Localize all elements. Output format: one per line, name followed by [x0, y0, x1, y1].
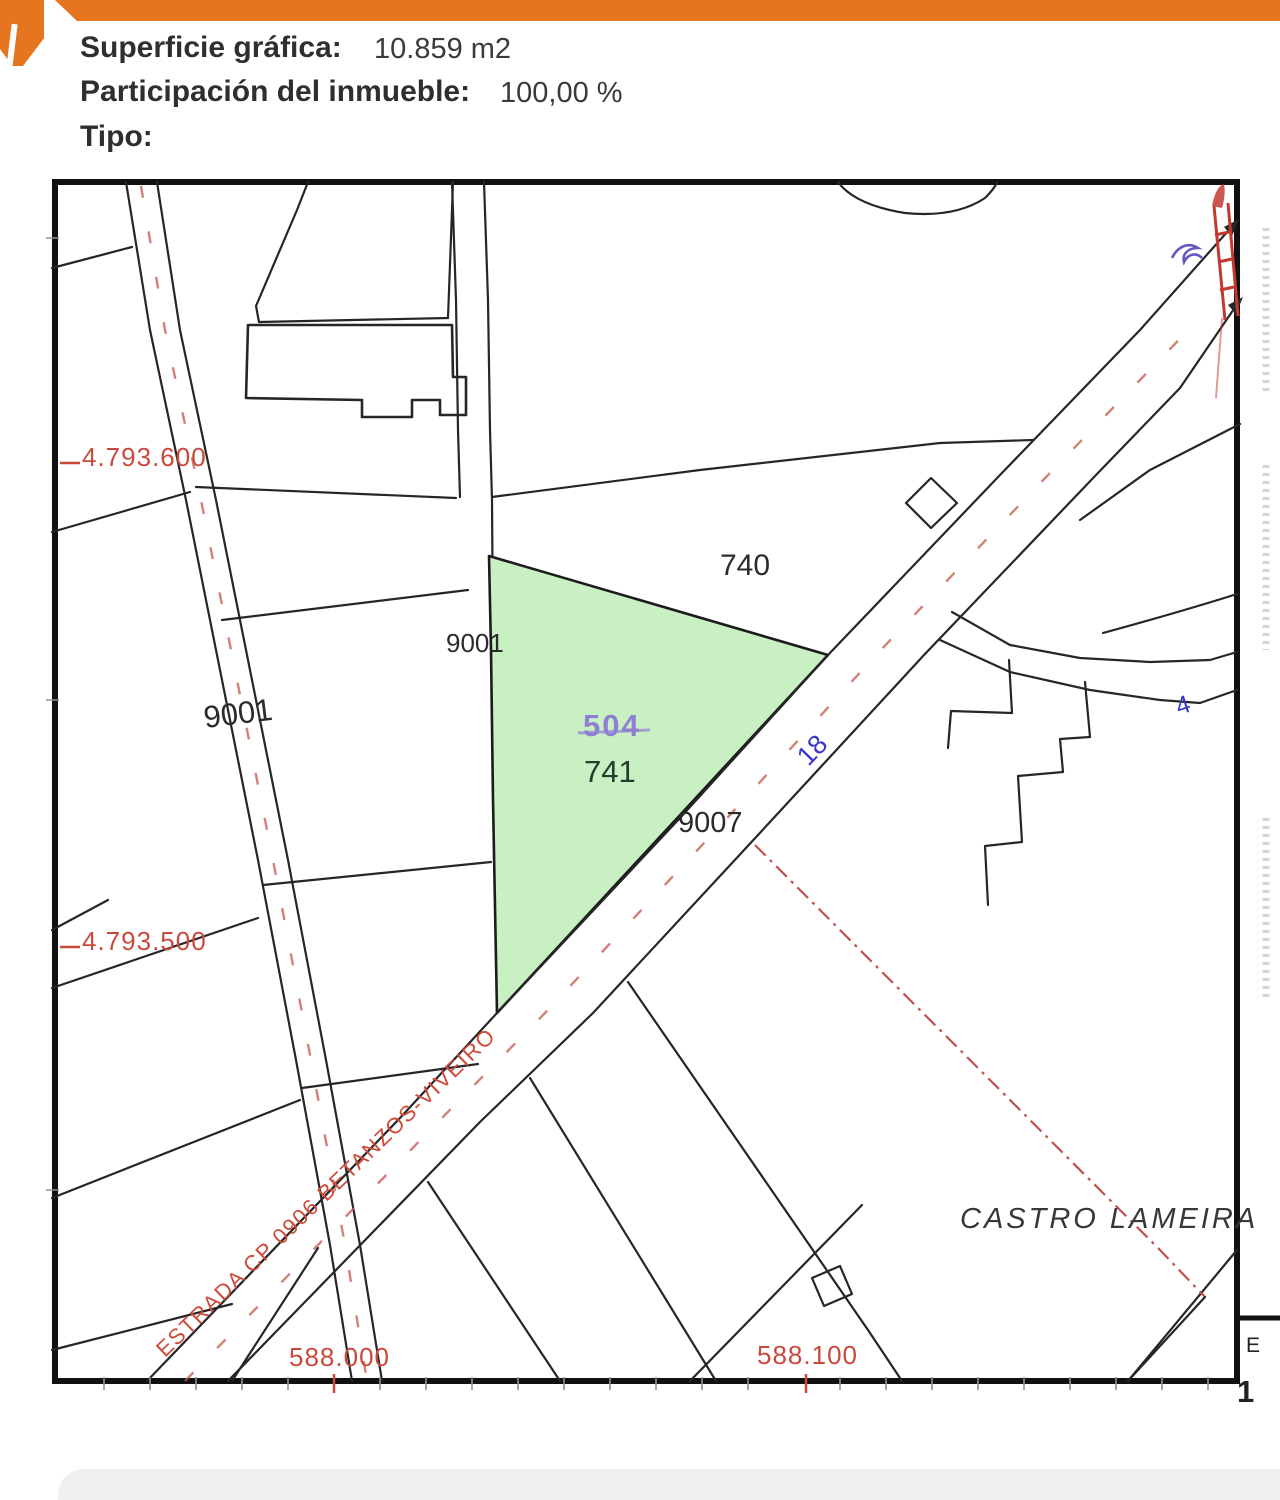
- subparcel-504-label: 504: [583, 708, 641, 743]
- scale-box: E 1: [1237, 1318, 1280, 1409]
- cadastral-map: E 1 740 9001 9001 9007 504 741 18 4 CAST…: [0, 0, 1280, 1500]
- road-9007-label: 9007: [678, 807, 743, 839]
- parcel-740-label: 740: [720, 549, 770, 582]
- bottom-section-bar: [58, 1469, 1280, 1500]
- road-9001-left-label: 9001: [202, 692, 275, 735]
- place-name-label: CASTRO LAMEIRA: [960, 1203, 1258, 1235]
- highlighted-parcel-741: [489, 556, 828, 1013]
- coord-north-4793600: 4.793.600: [82, 442, 207, 472]
- scale-letter: E: [1246, 1334, 1260, 1357]
- branch-road: [940, 612, 1237, 703]
- left-road: [126, 182, 382, 1381]
- branch-number-4-label: 4: [1172, 690, 1194, 721]
- parcel-741-label: 741: [584, 754, 636, 789]
- road-9001-mid-label: 9001: [446, 628, 504, 658]
- purple-mark: [1172, 245, 1202, 262]
- coord-north-4793500: 4.793.500: [82, 926, 207, 956]
- scale-number: 1: [1237, 1374, 1254, 1409]
- road-name-label: ESTRADA CP 0906 BETANZOS-VIVEIRO: [151, 1023, 500, 1362]
- building-outlines: [246, 182, 466, 417]
- coord-east-588100: 588.100: [757, 1340, 858, 1370]
- diamond-building-outline: [906, 478, 957, 528]
- cadastral-report-page: Superficie gráfica: 10.859 m2 Participac…: [0, 0, 1280, 1500]
- road-number-18-label: 18: [791, 729, 833, 771]
- coord-east-588000: 588.000: [289, 1342, 390, 1372]
